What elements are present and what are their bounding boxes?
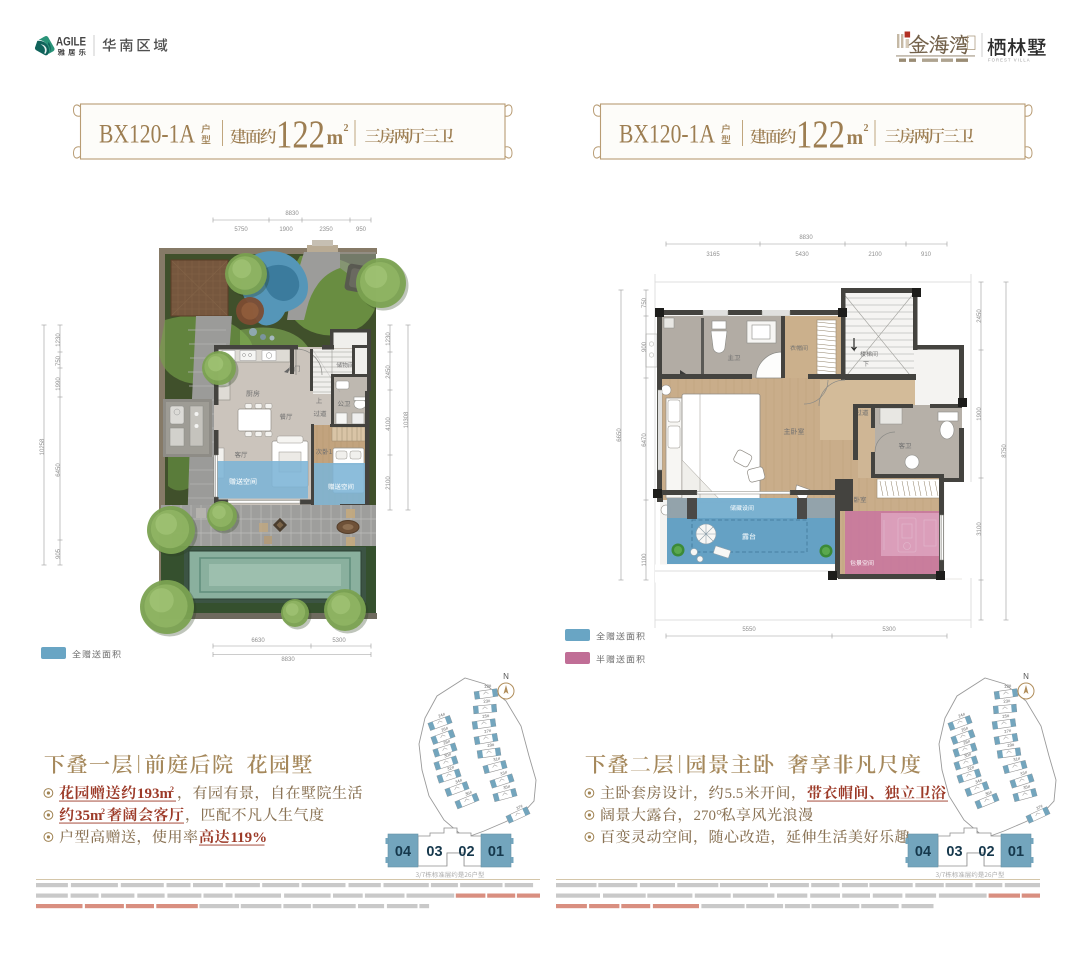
- svg-text:01: 01: [488, 844, 504, 860]
- svg-text:6450: 6450: [56, 463, 62, 477]
- svg-text:8830: 8830: [281, 657, 295, 663]
- svg-text:03: 03: [426, 844, 442, 860]
- svg-text:1900: 1900: [977, 407, 983, 421]
- svg-text:8750: 8750: [1002, 444, 1008, 458]
- svg-text:6470: 6470: [642, 433, 648, 447]
- svg-text:2: 2: [101, 807, 105, 816]
- svg-text:5550: 5550: [742, 627, 756, 633]
- svg-text:910: 910: [921, 252, 932, 258]
- svg-text:1230: 1230: [56, 333, 62, 347]
- svg-text:2450: 2450: [977, 309, 983, 323]
- svg-text:02: 02: [978, 844, 994, 860]
- svg-text:5300: 5300: [882, 627, 896, 633]
- svg-text:3100: 3100: [977, 522, 983, 536]
- svg-text:4100: 4100: [386, 417, 392, 431]
- svg-text:8830: 8830: [799, 235, 813, 241]
- svg-text:5750: 5750: [234, 227, 248, 233]
- svg-text:1100: 1100: [642, 553, 648, 567]
- svg-text:AGILE: AGILE: [56, 37, 86, 49]
- svg-text:m: m: [327, 127, 344, 149]
- svg-text:10258: 10258: [40, 438, 46, 455]
- svg-text:BX120-1A: BX120-1A: [619, 120, 715, 149]
- svg-text:2350: 2350: [319, 227, 333, 233]
- svg-text:119%: 119%: [231, 830, 268, 846]
- svg-text:N: N: [503, 672, 509, 681]
- svg-text:2: 2: [170, 785, 174, 794]
- svg-text:10308: 10308: [404, 411, 410, 428]
- svg-text:5.5: 5.5: [725, 786, 744, 802]
- svg-text:04: 04: [915, 844, 931, 860]
- svg-text:1230: 1230: [386, 332, 392, 346]
- svg-text:3165: 3165: [706, 252, 720, 258]
- svg-text:5430: 5430: [795, 252, 809, 258]
- svg-text:2100: 2100: [868, 252, 882, 258]
- svg-text:2: 2: [344, 123, 349, 134]
- svg-text:900: 900: [642, 341, 648, 352]
- svg-text:m: m: [847, 127, 864, 149]
- svg-text:BX120-1A: BX120-1A: [99, 120, 195, 149]
- svg-text:6650: 6650: [617, 428, 623, 442]
- svg-text:2450: 2450: [386, 365, 392, 379]
- svg-text:8830: 8830: [285, 211, 299, 217]
- svg-text:03: 03: [946, 844, 962, 860]
- svg-text:122: 122: [276, 113, 325, 156]
- svg-text:750: 750: [56, 355, 62, 366]
- svg-text:FOREST VILLA: FOREST VILLA: [988, 58, 1031, 63]
- svg-text:N: N: [1023, 672, 1029, 681]
- svg-text:5300: 5300: [332, 638, 346, 644]
- svg-text:02: 02: [458, 844, 474, 860]
- svg-text:270°: 270°: [694, 808, 723, 824]
- svg-text:6630: 6630: [251, 638, 265, 644]
- svg-text:35m: 35m: [75, 808, 103, 824]
- svg-text:950: 950: [356, 227, 367, 233]
- svg-text:905: 905: [56, 548, 62, 559]
- svg-text:1990: 1990: [56, 377, 62, 391]
- svg-text:122: 122: [796, 113, 845, 156]
- svg-text:750: 750: [642, 297, 648, 308]
- svg-text:193m: 193m: [137, 786, 173, 802]
- svg-text:2100: 2100: [386, 476, 392, 490]
- svg-text:01: 01: [1008, 844, 1024, 860]
- svg-text:2: 2: [864, 123, 869, 134]
- svg-text:04: 04: [395, 844, 411, 860]
- svg-text:1900: 1900: [279, 227, 293, 233]
